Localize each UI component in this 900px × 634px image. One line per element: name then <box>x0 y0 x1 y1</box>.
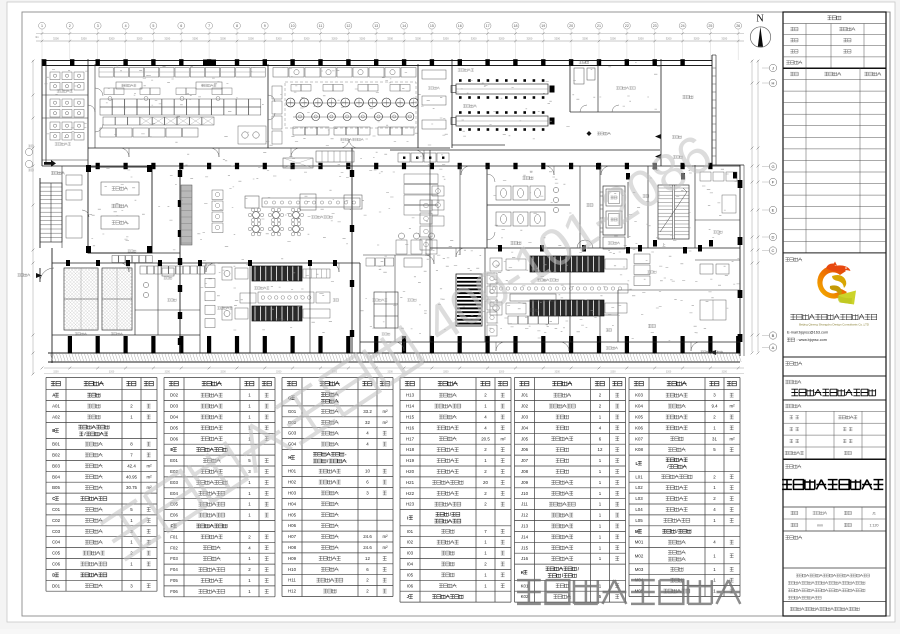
svg-text:3200: 3200 <box>722 371 728 374</box>
svg-text:H19: H19 <box>406 458 415 463</box>
svg-text:21: 21 <box>597 24 601 28</box>
svg-text:1:120: 1:120 <box>870 523 879 527</box>
svg-text:3200: 3200 <box>666 371 672 374</box>
svg-text:12: 12 <box>365 556 370 561</box>
svg-text:3200: 3200 <box>610 36 616 40</box>
svg-text:8: 8 <box>236 24 238 28</box>
svg-text:H23: H23 <box>406 502 415 507</box>
svg-text:K03: K03 <box>635 393 643 398</box>
svg-text:I03: I03 <box>407 551 414 556</box>
svg-text:K04: K04 <box>635 404 643 409</box>
svg-text:I04: I04 <box>407 562 414 567</box>
svg-text:3200: 3200 <box>443 371 449 374</box>
svg-text:B01: B01 <box>52 442 60 447</box>
svg-text:H04: H04 <box>288 501 297 506</box>
svg-text:H09: H09 <box>288 556 297 561</box>
svg-text:M03: M03 <box>635 567 644 572</box>
svg-text:H11: H11 <box>288 578 296 583</box>
svg-text:3200: 3200 <box>137 36 143 40</box>
svg-text:3200: 3200 <box>276 36 282 40</box>
svg-text:3200: 3200 <box>387 371 393 374</box>
svg-text:H21: H21 <box>406 480 415 485</box>
svg-text:D02: D02 <box>170 393 179 398</box>
svg-text:2: 2 <box>69 24 71 28</box>
svg-text:31: 31 <box>712 436 717 441</box>
svg-text:A: A <box>772 345 775 350</box>
svg-text:H22: H22 <box>406 491 415 496</box>
svg-text:F05: F05 <box>170 578 178 583</box>
svg-text:G03: G03 <box>288 431 297 436</box>
svg-text:H08: H08 <box>288 545 297 550</box>
svg-text:J13: J13 <box>521 524 529 529</box>
svg-text:3200: 3200 <box>164 36 170 40</box>
svg-text:C05: C05 <box>52 551 61 556</box>
svg-text:E01: E01 <box>170 458 178 463</box>
svg-text:13: 13 <box>374 24 378 28</box>
svg-text:3200: 3200 <box>555 371 561 374</box>
svg-text:m²: m² <box>146 474 152 479</box>
svg-text:L05: L05 <box>635 518 643 523</box>
svg-text:22: 22 <box>625 24 629 28</box>
svg-text:H16: H16 <box>406 425 415 430</box>
svg-text:3200: 3200 <box>387 36 393 40</box>
svg-text:m²: m² <box>146 463 152 468</box>
svg-text:12: 12 <box>346 24 350 28</box>
svg-text:J: J <box>772 65 774 70</box>
svg-text:m²: m² <box>729 404 735 409</box>
svg-text:J01: J01 <box>521 393 529 398</box>
svg-text:H14: H14 <box>406 404 415 409</box>
svg-text:H10: H10 <box>288 567 297 572</box>
svg-text:9: 9 <box>264 24 266 28</box>
svg-text:12: 12 <box>598 447 603 452</box>
svg-text:E04: E04 <box>170 491 178 496</box>
svg-text:18: 18 <box>514 24 518 28</box>
svg-text:4: 4 <box>125 24 127 28</box>
svg-text:19: 19 <box>541 24 545 28</box>
svg-text:3200: 3200 <box>443 36 449 40</box>
svg-text:J12: J12 <box>521 513 529 518</box>
svg-text:A01: A01 <box>52 404 60 409</box>
svg-text:L02: L02 <box>635 485 643 490</box>
svg-text:3200: 3200 <box>527 36 533 40</box>
svg-text:3200: 3200 <box>192 36 198 40</box>
svg-text:16: 16 <box>458 24 462 28</box>
svg-text:M02: M02 <box>635 553 644 558</box>
svg-text:3200: 3200 <box>109 36 115 40</box>
svg-text:H18: H18 <box>406 447 415 452</box>
svg-text:J14: J14 <box>521 534 529 539</box>
svg-text:I05: I05 <box>407 572 414 577</box>
svg-text:J16: J16 <box>521 556 529 561</box>
svg-text:C04: C04 <box>52 540 61 545</box>
svg-text:24.6: 24.6 <box>363 534 372 539</box>
svg-text:3200: 3200 <box>109 371 115 374</box>
svg-text:m²: m² <box>382 545 388 550</box>
svg-text:H20: H20 <box>406 469 415 474</box>
svg-text:33.2: 33.2 <box>363 409 372 414</box>
svg-text:L01: L01 <box>635 474 643 479</box>
svg-text:42.4: 42.4 <box>127 463 136 468</box>
svg-text:J05: J05 <box>521 436 529 441</box>
svg-text:C01: C01 <box>52 507 61 512</box>
svg-text:m²: m² <box>382 409 388 414</box>
svg-text:D04: D04 <box>170 415 179 420</box>
svg-text:D06: D06 <box>170 436 179 441</box>
svg-text:10: 10 <box>291 24 295 28</box>
svg-text:3200: 3200 <box>276 371 282 374</box>
svg-text:G01: G01 <box>288 409 297 414</box>
svg-text:3: 3 <box>97 24 99 28</box>
svg-text:M01: M01 <box>635 540 644 545</box>
svg-text:23: 23 <box>653 24 657 28</box>
svg-text:mm: mm <box>817 523 823 527</box>
svg-text:32: 32 <box>365 420 370 425</box>
svg-text:C06: C06 <box>52 562 61 567</box>
svg-text:24: 24 <box>681 24 685 28</box>
svg-text:3200: 3200 <box>359 36 365 40</box>
svg-text:L03: L03 <box>635 496 643 501</box>
svg-text:G: G <box>771 164 774 169</box>
svg-text:H06: H06 <box>288 523 297 528</box>
svg-text:F02: F02 <box>170 545 178 550</box>
svg-text:m²: m² <box>500 436 506 441</box>
svg-text:3200: 3200 <box>165 371 171 374</box>
svg-text:15: 15 <box>430 24 434 28</box>
svg-text:E06: E06 <box>170 513 178 518</box>
svg-text:H02: H02 <box>288 480 297 485</box>
svg-text:3200: 3200 <box>499 36 505 40</box>
svg-text:J06: J06 <box>521 447 529 452</box>
svg-text:3200: 3200 <box>721 36 727 40</box>
svg-text:C03: C03 <box>52 529 61 534</box>
svg-text:3200: 3200 <box>81 36 87 40</box>
svg-text:14: 14 <box>402 24 406 28</box>
svg-text:3200: 3200 <box>53 371 59 374</box>
svg-text:7: 7 <box>208 24 210 28</box>
svg-text:H17: H17 <box>406 436 415 441</box>
svg-text:K07: K07 <box>635 436 643 441</box>
svg-text:m²: m² <box>382 420 388 425</box>
svg-text:B03: B03 <box>52 463 60 468</box>
svg-text:I: I <box>407 515 408 520</box>
svg-text:E03: E03 <box>170 480 178 485</box>
svg-text:I06: I06 <box>407 583 414 588</box>
svg-text:25: 25 <box>708 24 712 28</box>
svg-text:A02: A02 <box>52 415 60 420</box>
svg-text:C: C <box>772 248 775 253</box>
svg-text:3200: 3200 <box>248 36 254 40</box>
svg-text:H01: H01 <box>288 469 297 474</box>
svg-text:H12: H12 <box>288 589 297 594</box>
svg-text:D03: D03 <box>170 404 179 409</box>
svg-text:H: H <box>772 80 775 85</box>
svg-text:m²: m² <box>382 534 388 539</box>
svg-text:I01: I01 <box>407 529 414 534</box>
svg-text:3200: 3200 <box>610 371 616 374</box>
svg-text:20: 20 <box>569 24 573 28</box>
svg-text:J11: J11 <box>521 502 528 507</box>
svg-text:F03: F03 <box>170 556 178 561</box>
svg-text:30.75: 30.75 <box>126 485 138 490</box>
svg-text:Beijing Qineng Shangchu Desig: Beijing Qineng Shangchu Design Consultan… <box>799 322 869 326</box>
svg-text:40.95: 40.95 <box>126 474 138 479</box>
svg-text:3200: 3200 <box>415 36 421 40</box>
svg-text:3200: 3200 <box>220 371 226 374</box>
svg-text:J1: J1 <box>872 511 876 515</box>
svg-text:L04: L04 <box>635 507 643 512</box>
svg-text:H03: H03 <box>288 491 297 496</box>
svg-text:J04: J04 <box>521 425 529 430</box>
svg-text:C02: C02 <box>52 518 61 523</box>
svg-text:5: 5 <box>152 24 154 28</box>
svg-text:K08: K08 <box>635 447 643 452</box>
svg-text:J08: J08 <box>521 469 529 474</box>
svg-text:H13: H13 <box>406 393 415 398</box>
svg-text:J07: J07 <box>521 458 529 463</box>
svg-text:H07: H07 <box>288 534 297 539</box>
svg-text:J15: J15 <box>521 545 529 550</box>
svg-text:3200: 3200 <box>638 36 644 40</box>
svg-text:24.6: 24.6 <box>363 545 372 550</box>
svg-text:F06: F06 <box>170 589 178 594</box>
svg-text:3200: 3200 <box>304 36 310 40</box>
svg-text:B02: B02 <box>52 453 60 458</box>
svg-text:B05: B05 <box>52 485 60 490</box>
svg-text:11: 11 <box>319 24 323 28</box>
svg-text:B04: B04 <box>52 474 60 479</box>
svg-text:3200: 3200 <box>666 36 672 40</box>
svg-text:D01: D01 <box>52 583 61 588</box>
svg-text:3200: 3200 <box>499 371 505 374</box>
svg-text:20.5: 20.5 <box>481 436 490 441</box>
svg-text:3m: 3m <box>35 35 39 39</box>
svg-text:m²: m² <box>729 436 735 441</box>
svg-text:3200: 3200 <box>554 36 560 40</box>
svg-text:J02: J02 <box>521 404 529 409</box>
svg-text:J10: J10 <box>521 491 529 496</box>
svg-text:E: E <box>170 447 173 452</box>
svg-text:20: 20 <box>483 480 488 485</box>
svg-text:26: 26 <box>736 24 740 28</box>
svg-text:3200: 3200 <box>332 36 338 40</box>
svg-text:17: 17 <box>486 24 490 28</box>
svg-text:10: 10 <box>365 469 370 474</box>
svg-text:D: D <box>772 234 775 239</box>
svg-text:D05: D05 <box>170 425 179 430</box>
svg-text:3200: 3200 <box>582 36 588 40</box>
svg-text:F01: F01 <box>170 534 178 539</box>
svg-text:6: 6 <box>180 24 182 28</box>
svg-text:9.4: 9.4 <box>711 404 718 409</box>
svg-text:I02: I02 <box>407 540 414 545</box>
svg-text:3200: 3200 <box>694 36 700 40</box>
svg-text:3200: 3200 <box>471 36 477 40</box>
svg-text:F04: F04 <box>170 567 178 572</box>
svg-text:J03: J03 <box>521 415 529 420</box>
svg-text:H05: H05 <box>288 512 297 517</box>
svg-text:E-mail:bjqnsc@163.com: E-mail:bjqnsc@163.com <box>787 330 828 334</box>
svg-text:3200: 3200 <box>53 36 59 40</box>
svg-text:1: 1 <box>41 24 43 28</box>
svg-text:E: E <box>772 207 775 212</box>
svg-text:: www.bjqnsc.com: : www.bjqnsc.com <box>797 338 827 342</box>
svg-text:J09: J09 <box>521 480 529 485</box>
svg-text:3200: 3200 <box>220 36 226 40</box>
svg-text:K06: K06 <box>635 425 643 430</box>
svg-text:H15: H15 <box>406 415 415 420</box>
svg-text:K05: K05 <box>635 415 643 420</box>
svg-text:N: N <box>756 14 764 25</box>
svg-text:B: B <box>772 333 775 338</box>
